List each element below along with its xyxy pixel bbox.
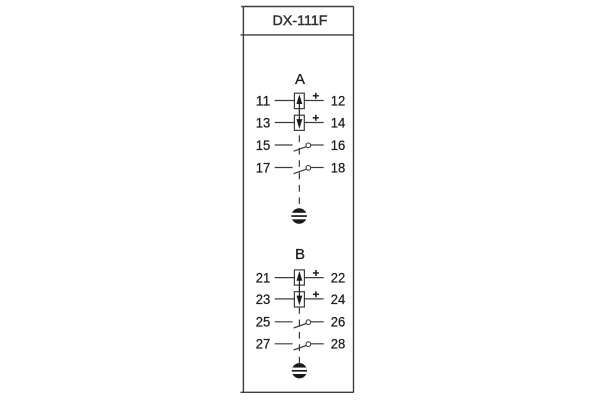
svg-text:25: 25 <box>256 315 271 330</box>
svg-text:23: 23 <box>256 292 271 307</box>
svg-text:17: 17 <box>256 160 271 175</box>
svg-text:24: 24 <box>331 292 346 307</box>
svg-text:26: 26 <box>331 315 346 330</box>
svg-text:13: 13 <box>256 115 271 130</box>
svg-text:11: 11 <box>256 93 271 108</box>
svg-text:14: 14 <box>331 115 346 130</box>
svg-text:A: A <box>295 71 305 88</box>
svg-text:16: 16 <box>331 138 346 153</box>
svg-text:27: 27 <box>256 337 271 352</box>
svg-text:15: 15 <box>256 138 271 153</box>
svg-text:28: 28 <box>331 337 346 352</box>
svg-text:12: 12 <box>331 93 346 108</box>
svg-text:B: B <box>295 246 305 263</box>
svg-text:21: 21 <box>256 271 271 286</box>
svg-text:DX-111F: DX-111F <box>273 13 328 28</box>
svg-text:18: 18 <box>331 160 346 175</box>
svg-text:22: 22 <box>331 271 346 286</box>
